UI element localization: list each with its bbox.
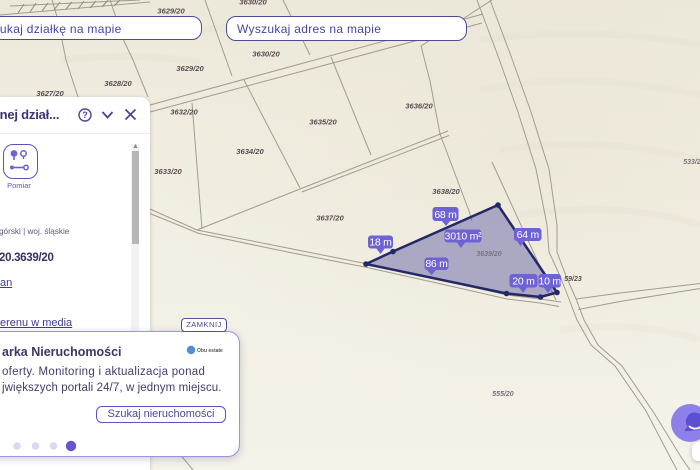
svg-text:3010 m²: 3010 m² (445, 231, 483, 243)
svg-text:3636/20: 3636/20 (405, 102, 433, 111)
svg-text:3637/20: 3637/20 (316, 214, 344, 223)
svg-text:68 m: 68 m (434, 209, 457, 221)
svg-text:3638/20: 3638/20 (432, 187, 460, 196)
svg-text:3635/20: 3635/20 (309, 118, 337, 127)
svg-text:10 m: 10 m (539, 275, 562, 287)
svg-text:3639/20: 3639/20 (476, 251, 501, 258)
svg-text:?: ? (82, 110, 88, 120)
svg-text:3632/20: 3632/20 (170, 108, 198, 117)
svg-text:86 m: 86 m (425, 258, 448, 270)
svg-text:59/23: 59/23 (564, 276, 582, 283)
svg-text:20 m: 20 m (512, 275, 535, 287)
svg-text:3629/20: 3629/20 (176, 64, 204, 73)
svg-text:18 m: 18 m (369, 237, 392, 249)
svg-text:3630/20: 3630/20 (252, 50, 280, 59)
svg-text:555/20: 555/20 (492, 391, 514, 398)
svg-text:Obu estate: Obu estate (197, 348, 223, 354)
svg-text:3630/20: 3630/20 (239, 0, 267, 7)
svg-text:3629/20: 3629/20 (157, 7, 185, 16)
svg-text:533/2: 533/2 (683, 159, 700, 166)
svg-text:3634/20: 3634/20 (236, 147, 264, 156)
svg-text:3628/20: 3628/20 (104, 79, 132, 88)
svg-text:64 m: 64 m (517, 229, 540, 241)
svg-text:3633/20: 3633/20 (154, 167, 182, 176)
